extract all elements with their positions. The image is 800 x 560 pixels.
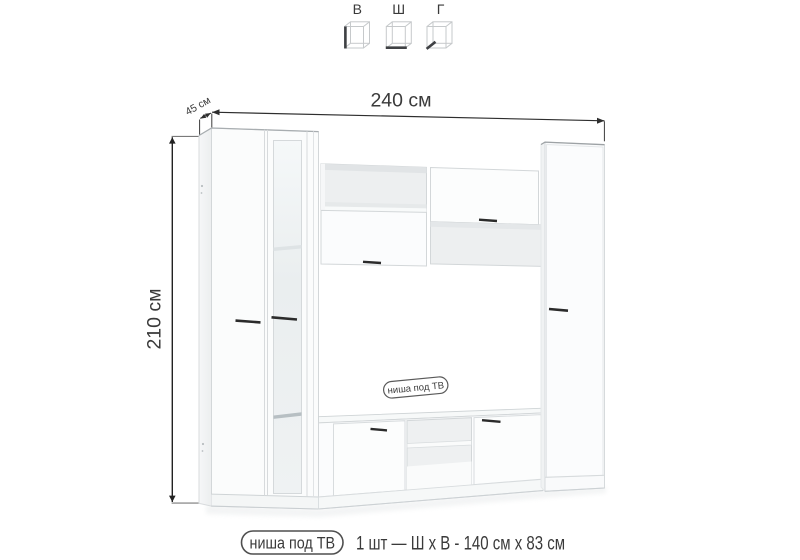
- svg-text:ниша под ТВ: ниша под ТВ: [250, 535, 336, 553]
- svg-text:240 см: 240 см: [370, 90, 431, 112]
- svg-text:210 см: 210 см: [144, 288, 166, 349]
- svg-text:Ш: Ш: [392, 1, 405, 17]
- svg-text:1 шт — Ш х В - 140 см х 83 см: 1 шт — Ш х В - 140 см х 83 см: [356, 534, 565, 555]
- svg-text:В: В: [353, 1, 362, 17]
- svg-text:Г: Г: [437, 1, 445, 17]
